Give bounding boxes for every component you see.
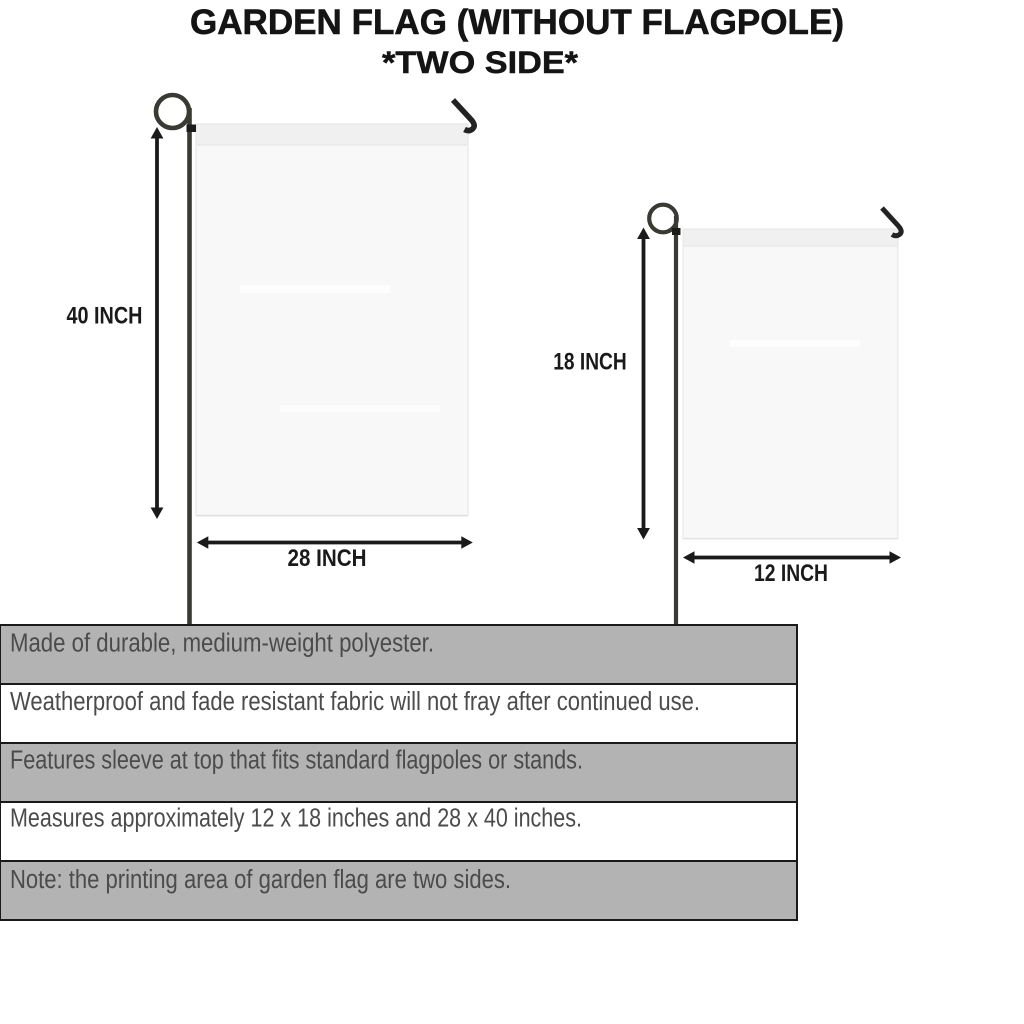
svg-text:Measures approximately 12 x 18: Measures approximately 12 x 18 inches an… xyxy=(10,805,582,833)
svg-text:12 INCH: 12 INCH xyxy=(754,560,828,587)
svg-text:Made of durable, medium-weight: Made of durable, medium-weight polyester… xyxy=(10,630,434,658)
svg-text:28 INCH: 28 INCH xyxy=(288,545,367,572)
svg-text:40 INCH: 40 INCH xyxy=(67,303,143,330)
svg-text:Weatherproof and fade resistan: Weatherproof and fade resistant fabric w… xyxy=(10,688,700,716)
svg-text:18 INCH: 18 INCH xyxy=(553,349,627,376)
svg-text:Features sleeve at top that fi: Features sleeve at top that fits standar… xyxy=(10,747,583,775)
svg-text:Note: the printing area of gar: Note: the printing area of garden flag a… xyxy=(10,866,511,894)
svg-text:GARDEN FLAG (WITHOUT FLAGPOLE): GARDEN FLAG (WITHOUT FLAGPOLE) xyxy=(190,3,844,42)
svg-text:*TWO SIDE*: *TWO SIDE* xyxy=(382,44,579,80)
